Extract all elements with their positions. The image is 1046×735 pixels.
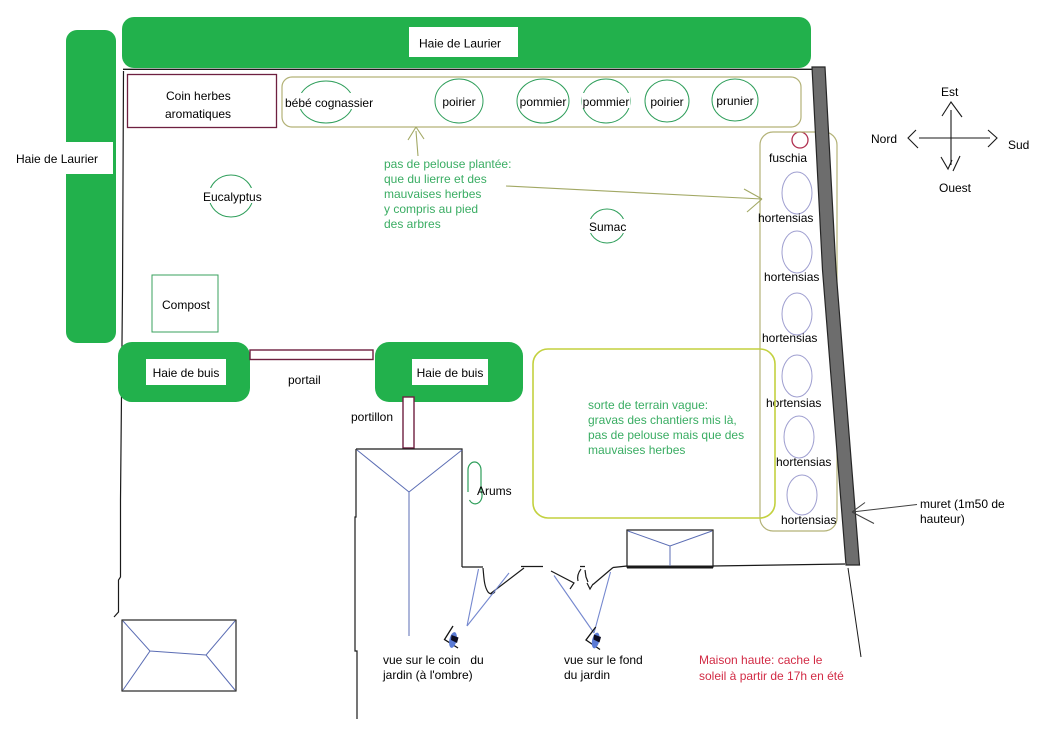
svg-text:bébé cognassier: bébé cognassier bbox=[285, 96, 373, 110]
svg-text:Haie de Laurier: Haie de Laurier bbox=[419, 37, 501, 51]
svg-text:Haie de Laurier: Haie de Laurier bbox=[16, 152, 98, 166]
svg-text:Ouest: Ouest bbox=[939, 181, 972, 195]
svg-text:hortensias: hortensias bbox=[762, 331, 817, 345]
svg-text:Sud: Sud bbox=[1008, 138, 1029, 152]
svg-text:hortensias: hortensias bbox=[781, 513, 836, 527]
svg-text:soleil à partir de 17h en été: soleil à partir de 17h en été bbox=[699, 669, 844, 683]
svg-text:aromatiques: aromatiques bbox=[165, 107, 231, 121]
svg-text:Haie de buis: Haie de buis bbox=[417, 366, 484, 380]
svg-text:prunier: prunier bbox=[716, 94, 753, 108]
svg-text:pommier: pommier bbox=[583, 95, 630, 109]
svg-text:muret (1m50 de: muret (1m50 de bbox=[920, 497, 1005, 511]
svg-text:jardin (à l'ombre): jardin (à l'ombre) bbox=[382, 668, 473, 682]
svg-text:Arums: Arums bbox=[477, 484, 512, 498]
svg-text:vue sur le coin du: vue sur le coin du bbox=[383, 653, 484, 667]
svg-text:que du lierre et des: que du lierre et des bbox=[384, 172, 487, 186]
svg-text:Est: Est bbox=[941, 85, 959, 99]
svg-text:Compost: Compost bbox=[162, 298, 211, 312]
svg-text:Eucalyptus: Eucalyptus bbox=[203, 190, 262, 204]
svg-text:pas de pelouse plantée:: pas de pelouse plantée: bbox=[384, 157, 511, 171]
svg-text:Nord: Nord bbox=[871, 132, 897, 146]
svg-text:poirier: poirier bbox=[650, 95, 683, 109]
svg-text:gravas des chantiers mis là,: gravas des chantiers mis là, bbox=[588, 413, 737, 427]
svg-text:du jardin: du jardin bbox=[564, 668, 610, 682]
svg-text:portail: portail bbox=[288, 373, 321, 387]
svg-text:Sumac: Sumac bbox=[589, 220, 626, 234]
svg-text:hortensias: hortensias bbox=[776, 455, 831, 469]
svg-text:mauvaises herbes: mauvaises herbes bbox=[588, 443, 685, 457]
svg-text:fuschia: fuschia bbox=[769, 151, 807, 165]
svg-text:hortensias: hortensias bbox=[758, 211, 813, 225]
svg-text:poirier: poirier bbox=[442, 95, 475, 109]
svg-text:hortensias: hortensias bbox=[764, 270, 819, 284]
svg-text:Haie de buis: Haie de buis bbox=[153, 366, 220, 380]
svg-text:vue sur le fond: vue sur le fond bbox=[564, 653, 643, 667]
svg-text:Coin herbes: Coin herbes bbox=[166, 89, 231, 103]
svg-text:Maison haute: cache le: Maison haute: cache le bbox=[699, 653, 823, 667]
svg-text:des arbres: des arbres bbox=[384, 217, 441, 231]
svg-text:mauvaises herbes: mauvaises herbes bbox=[384, 187, 481, 201]
svg-text:y compris au pied: y compris au pied bbox=[384, 202, 478, 216]
svg-text:pas de pelouse mais que des: pas de pelouse mais que des bbox=[588, 428, 744, 442]
svg-text:pommier: pommier bbox=[520, 95, 567, 109]
svg-text:sorte de terrain vague:: sorte de terrain vague: bbox=[588, 398, 708, 412]
svg-text:hauteur): hauteur) bbox=[920, 512, 965, 526]
svg-text:portillon: portillon bbox=[351, 410, 393, 424]
